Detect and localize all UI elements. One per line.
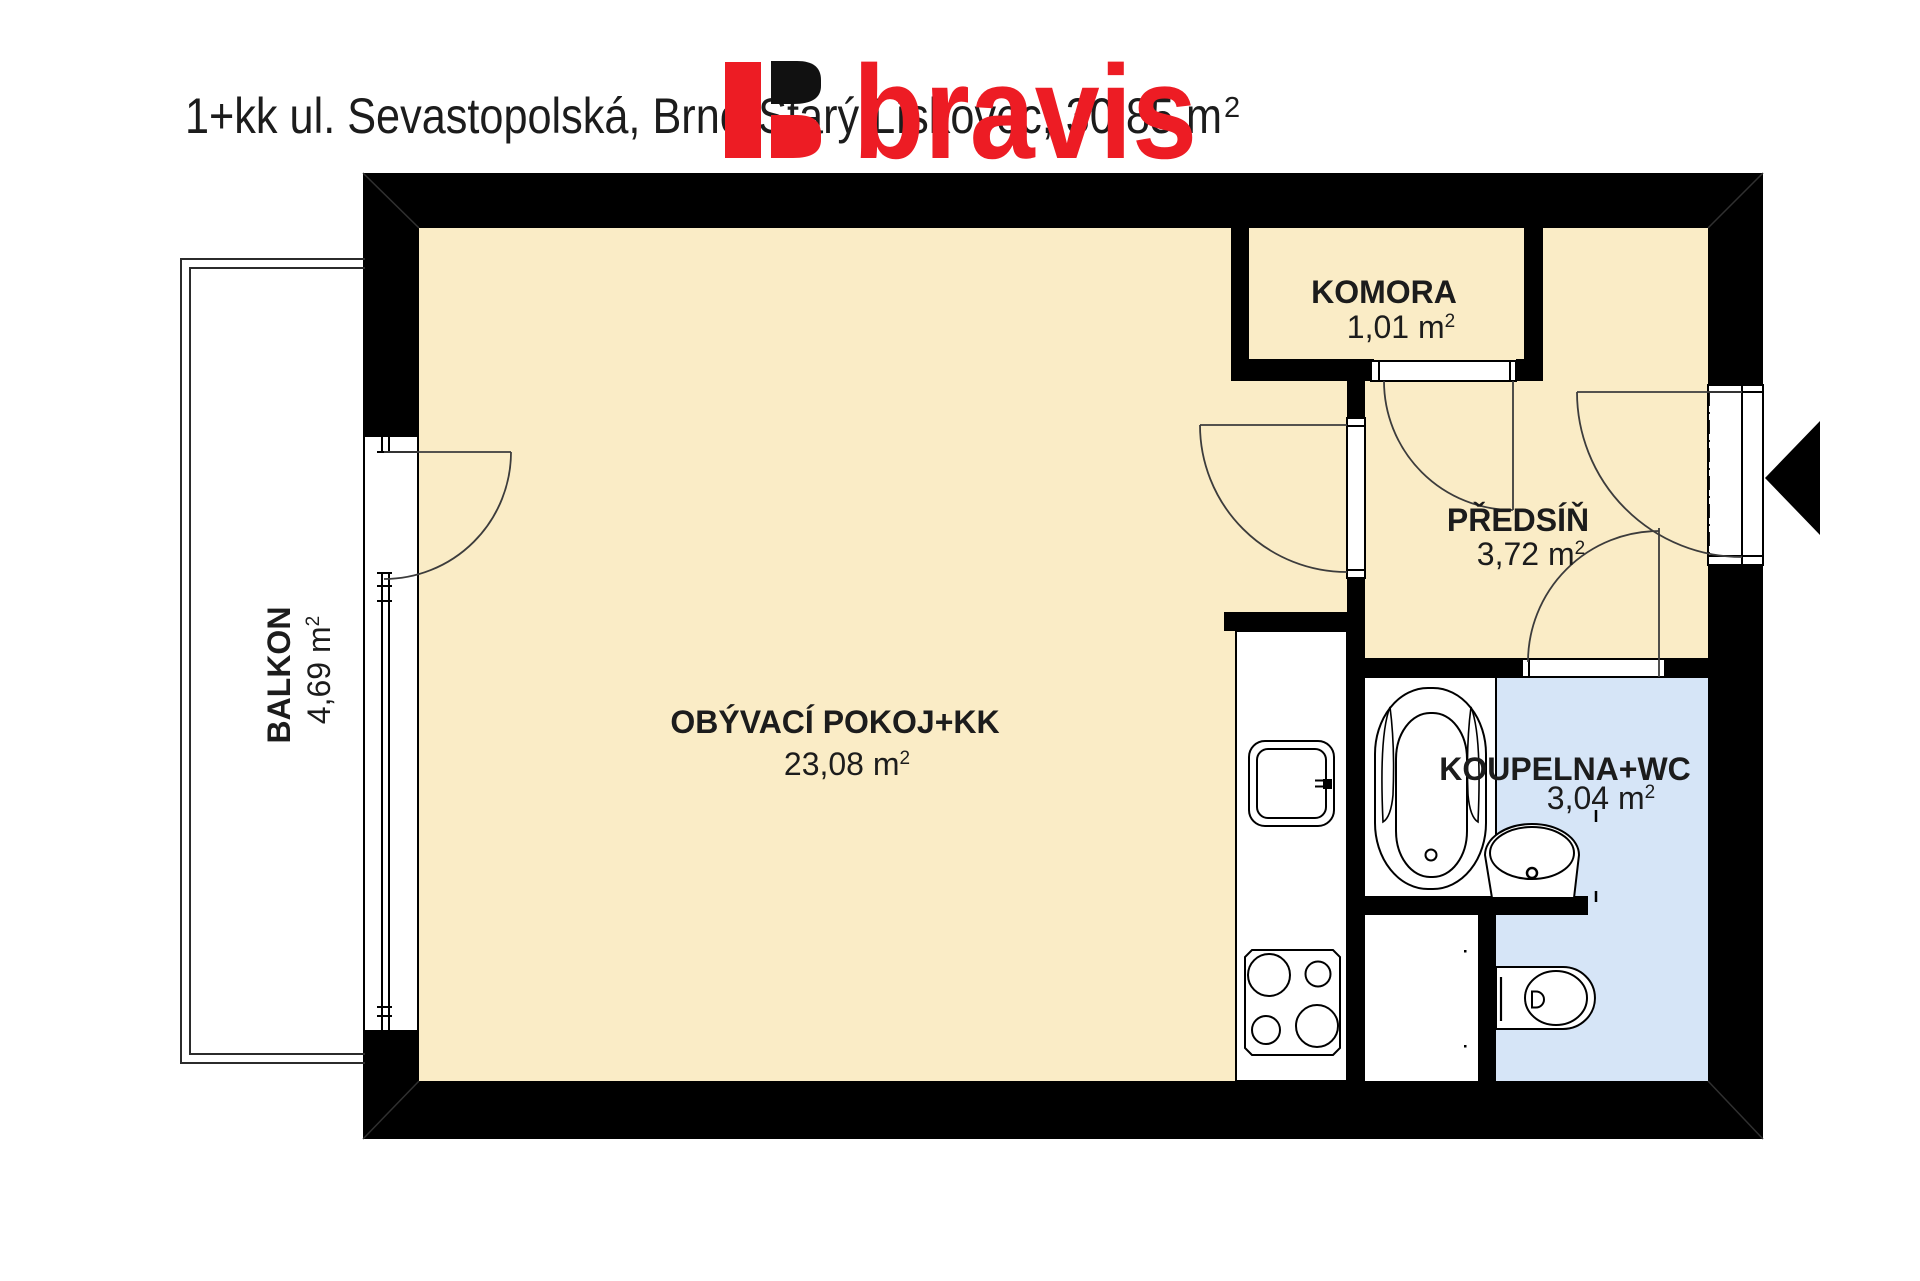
svg-text:1,01 m2: 1,01 m2	[1347, 309, 1455, 345]
svg-text:OBÝVACÍ POKOJ+KK: OBÝVACÍ POKOJ+KK	[670, 704, 999, 740]
svg-text:PŘEDSÍŇ: PŘEDSÍŇ	[1447, 502, 1589, 538]
svg-text:bravis: bravis	[853, 39, 1197, 187]
svg-text:23,08 m2: 23,08 m2	[784, 746, 910, 782]
svg-text:BALKON: BALKON	[261, 607, 297, 744]
svg-text:KOMORA: KOMORA	[1311, 274, 1457, 310]
svg-text:3,72 m2: 3,72 m2	[1477, 536, 1585, 572]
svg-text:2: 2	[1224, 92, 1240, 124]
svg-text:4,69 m2: 4,69 m2	[301, 616, 337, 724]
svg-text:3,04 m2: 3,04 m2	[1547, 780, 1655, 816]
